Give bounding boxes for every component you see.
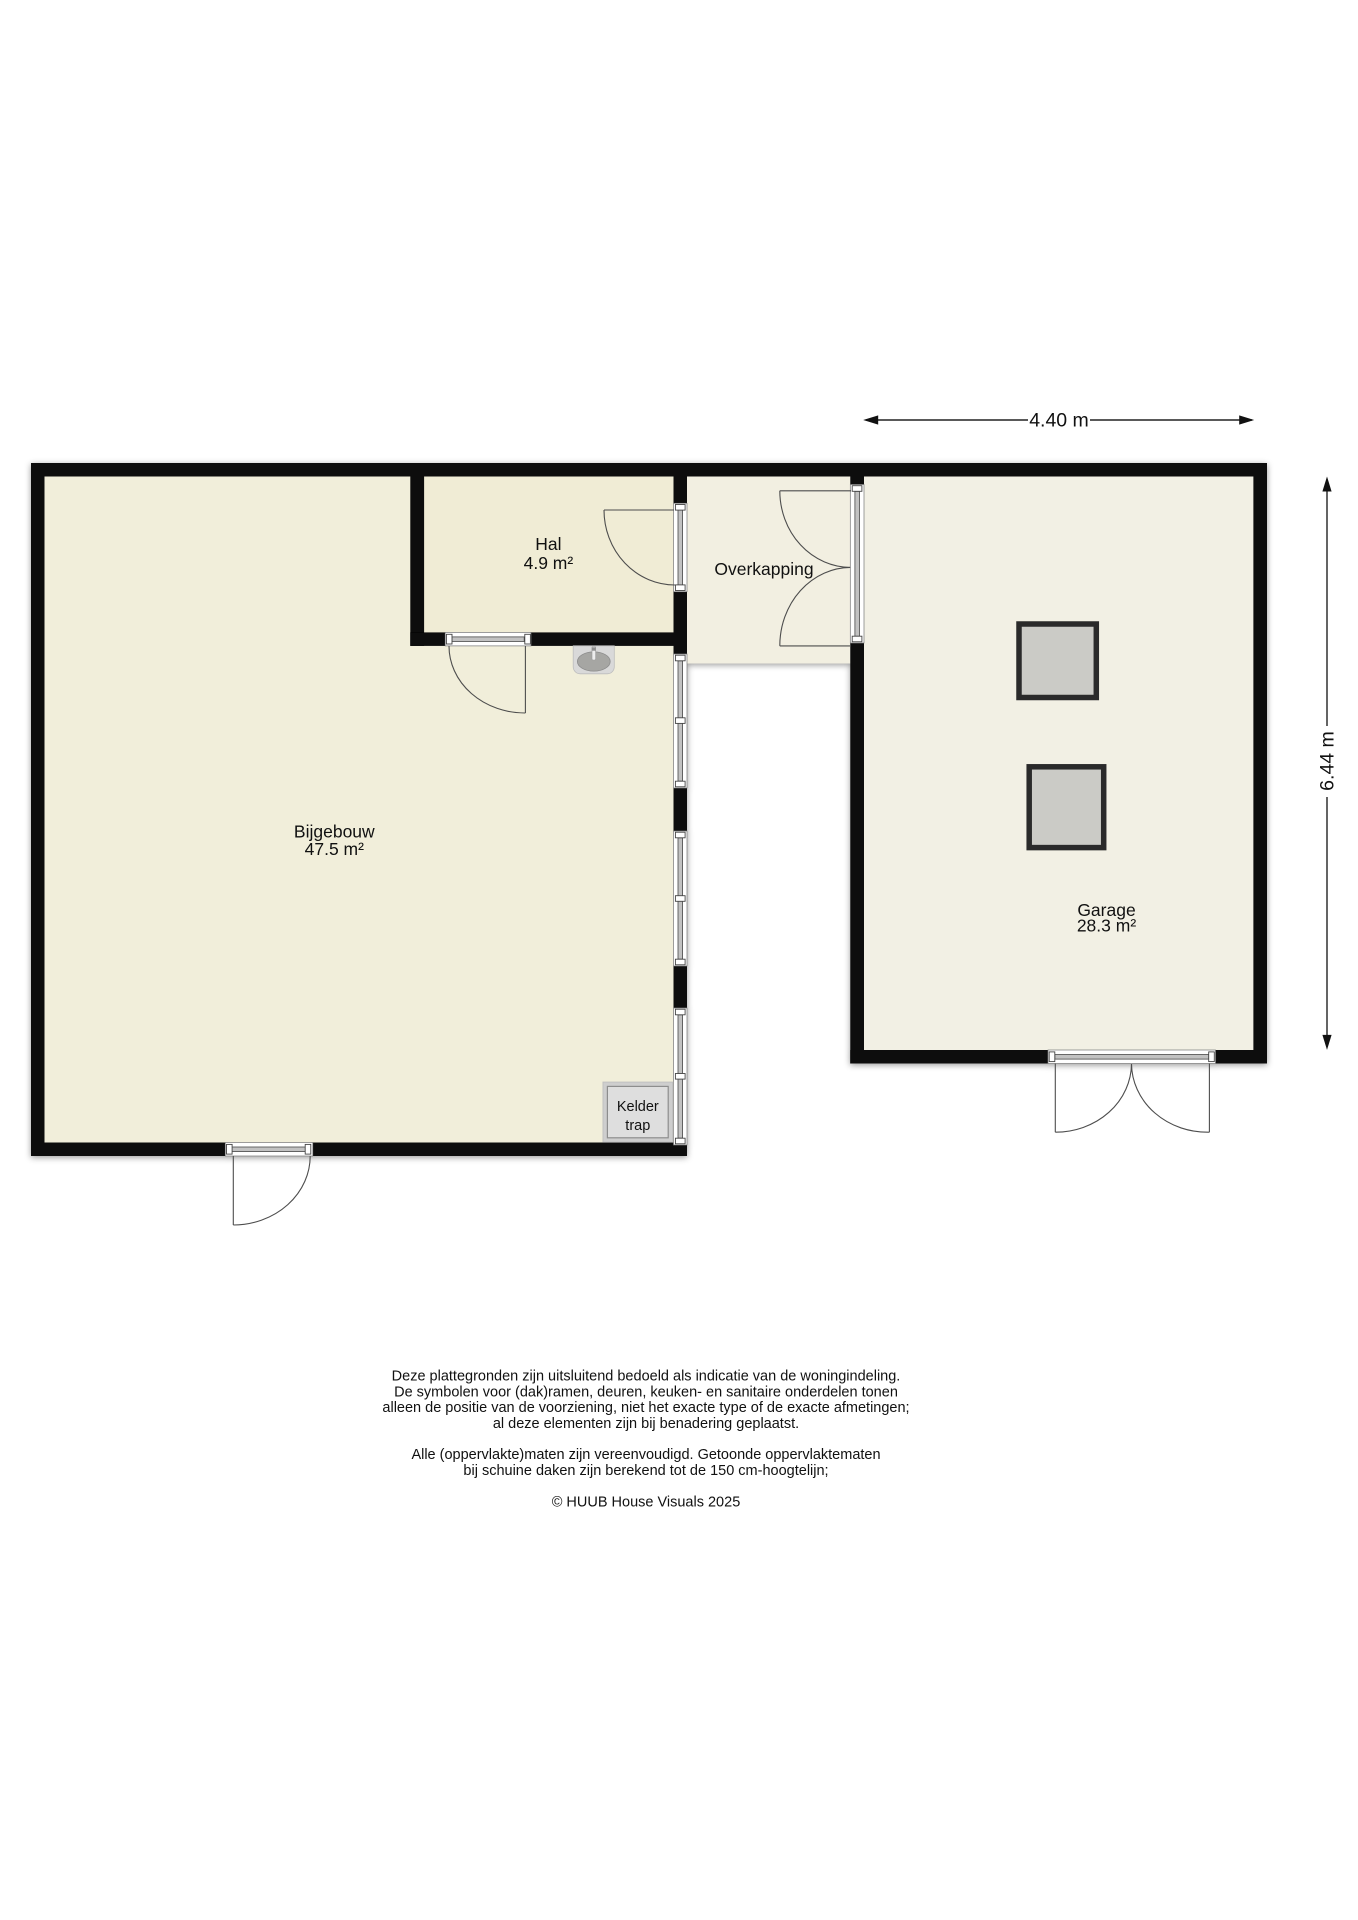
svg-text:trap: trap bbox=[625, 1118, 650, 1134]
svg-text:alleen de positie van de voorz: alleen de positie van de voorziening, ni… bbox=[382, 1400, 909, 1416]
svg-text:4.9 m²: 4.9 m² bbox=[524, 553, 574, 573]
svg-text:4.40 m: 4.40 m bbox=[1029, 410, 1089, 432]
svg-text:al deze elementen zijn bij ben: al deze elementen zijn bij benadering ge… bbox=[493, 1416, 799, 1432]
svg-text:Overkapping: Overkapping bbox=[714, 559, 813, 579]
svg-text:© HUUB House Visuals 2025: © HUUB House Visuals 2025 bbox=[552, 1494, 741, 1510]
svg-text:28.3 m²: 28.3 m² bbox=[1077, 916, 1136, 936]
svg-text:6.44 m: 6.44 m bbox=[1317, 731, 1339, 791]
svg-text:Alle (oppervlakte)maten zijn v: Alle (oppervlakte)maten zijn vereenvoudi… bbox=[411, 1447, 880, 1463]
svg-text:De symbolen voor (dak)ramen, d: De symbolen voor (dak)ramen, deuren, keu… bbox=[394, 1384, 898, 1400]
svg-text:Hal: Hal bbox=[535, 534, 561, 554]
svg-text:Deze plattegronden zijn uitslu: Deze plattegronden zijn uitsluitend bedo… bbox=[392, 1369, 901, 1385]
svg-text:47.5 m²: 47.5 m² bbox=[305, 839, 364, 859]
svg-text:Kelder: Kelder bbox=[617, 1099, 659, 1115]
svg-text:bij schuine daken zijn bereken: bij schuine daken zijn berekend tot de 1… bbox=[463, 1463, 828, 1479]
